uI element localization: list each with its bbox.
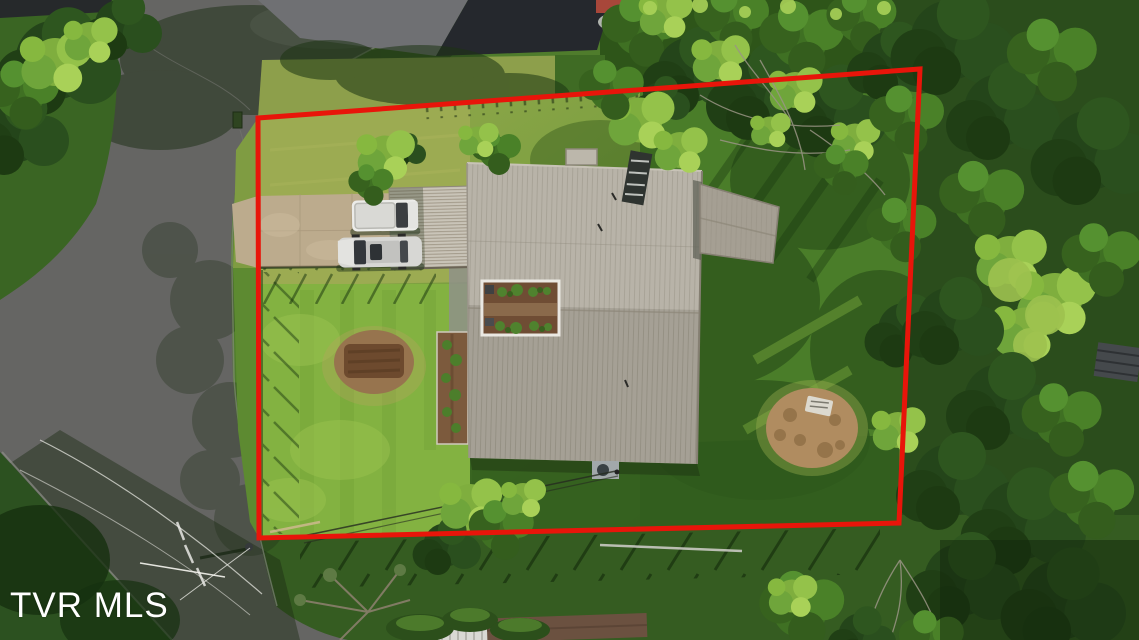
shed (1094, 342, 1139, 382)
suv-windshield (354, 240, 366, 264)
chimney (566, 149, 597, 165)
watermark-text: TVR MLS (10, 586, 169, 626)
mailbox (233, 112, 242, 128)
suv (336, 233, 425, 272)
truck-windshield (396, 203, 408, 228)
courtyard-garden (482, 281, 559, 335)
aerial-property-photo: TVR MLS (0, 0, 1139, 640)
scene-canvas (0, 0, 1139, 640)
dirt-patch-left (322, 326, 426, 406)
dirt-patch-right (756, 380, 868, 476)
pickup-truck (350, 199, 421, 235)
walkway (449, 264, 470, 334)
garden-bed-strip (437, 332, 468, 444)
